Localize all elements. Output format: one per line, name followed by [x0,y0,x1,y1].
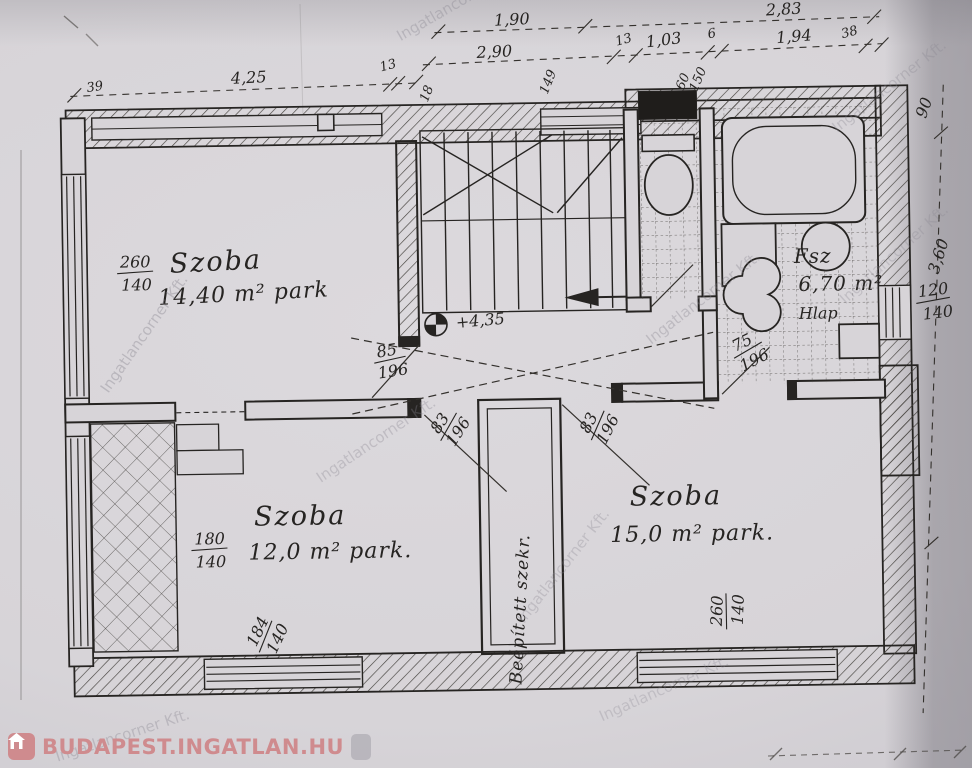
staircase [420,128,628,313]
room-bottom-left-name: Szoba [254,500,347,532]
svg-text:260: 260 [119,252,151,271]
svg-text:120: 120 [917,279,950,302]
house-icon [8,733,35,760]
stair-direction-arrow [564,288,598,307]
dim-top1-b: 2,83 [764,0,802,20]
dim-small-149: 149 [537,68,560,97]
svg-text:140: 140 [196,552,227,571]
svg-text:140: 140 [728,594,748,625]
bathtub [722,116,866,224]
dim-left-39: 39 [86,79,105,96]
dim-upper-left-13: 13 [378,57,398,76]
door-dim-room-left: 83 196 [424,403,474,452]
dim-top2-e: 1,94 [775,25,812,47]
hlap-fixture [839,324,880,359]
room-bottom-right-name: Szoba [629,480,722,512]
room-bottom-right-area: 15,0 m² park. [610,520,774,548]
dim-top1-a: 1,90 [494,9,531,30]
toilet-bowl [644,155,693,216]
scanned-floorplan-page: +4,35 Szoba 14,40 m² park Szoba 12,0 m² … [0,0,972,768]
dim-top2-b: 13 [614,31,634,50]
dim-top2-c: 1,03 [645,28,683,51]
dim-right-360: 3,60 [924,236,953,276]
dim-small-18: 18 [417,83,437,104]
dim-top2-f: 38 [840,23,860,42]
toilet-tank [642,135,694,152]
svg-text:140: 140 [121,275,152,294]
door-dim-room-right: 83 196 [574,402,624,449]
floorplan-drawing: +4,35 Szoba 14,40 m² park Szoba 12,0 m² … [0,0,972,768]
bathroom-area: 6,70 m² [798,271,883,296]
logo-gray-tab [351,734,371,760]
chimney-shaft [638,91,696,120]
svg-text:260: 260 [707,595,727,627]
window-dim-bottom-right: 260 140 [707,593,748,630]
bathroom-name: Fsz [793,243,832,268]
svg-text:140: 140 [922,301,955,324]
window-dim-top-left: 260 140 [117,252,154,295]
logo-text: BUDAPEST.INGATLAN.HU [42,735,344,759]
window-dim-mid-left: 180 140 [191,529,228,572]
svg-text:196: 196 [376,359,409,382]
window-dim-bottom-left: 184 140 [241,612,292,661]
dim-top2-d: 6 [706,26,717,42]
dim-top2-a: 2,90 [475,41,513,62]
room-bottom-left-area: 12,0 m² park. [248,538,412,566]
svg-text:180: 180 [194,529,225,548]
bathroom-floor-label: Hlap [798,303,838,323]
room-top-left-name: Szoba [169,244,263,280]
level-value: +4,35 [455,309,505,332]
dim-right-90: 90 [912,95,937,120]
window-dim-right: 120 140 [914,278,954,324]
dim-upper-left: 4,25 [229,67,267,88]
room-top-left-area: 14,40 m² park [158,277,330,311]
footer-logo: BUDAPEST.INGATLAN.HU [8,733,371,760]
